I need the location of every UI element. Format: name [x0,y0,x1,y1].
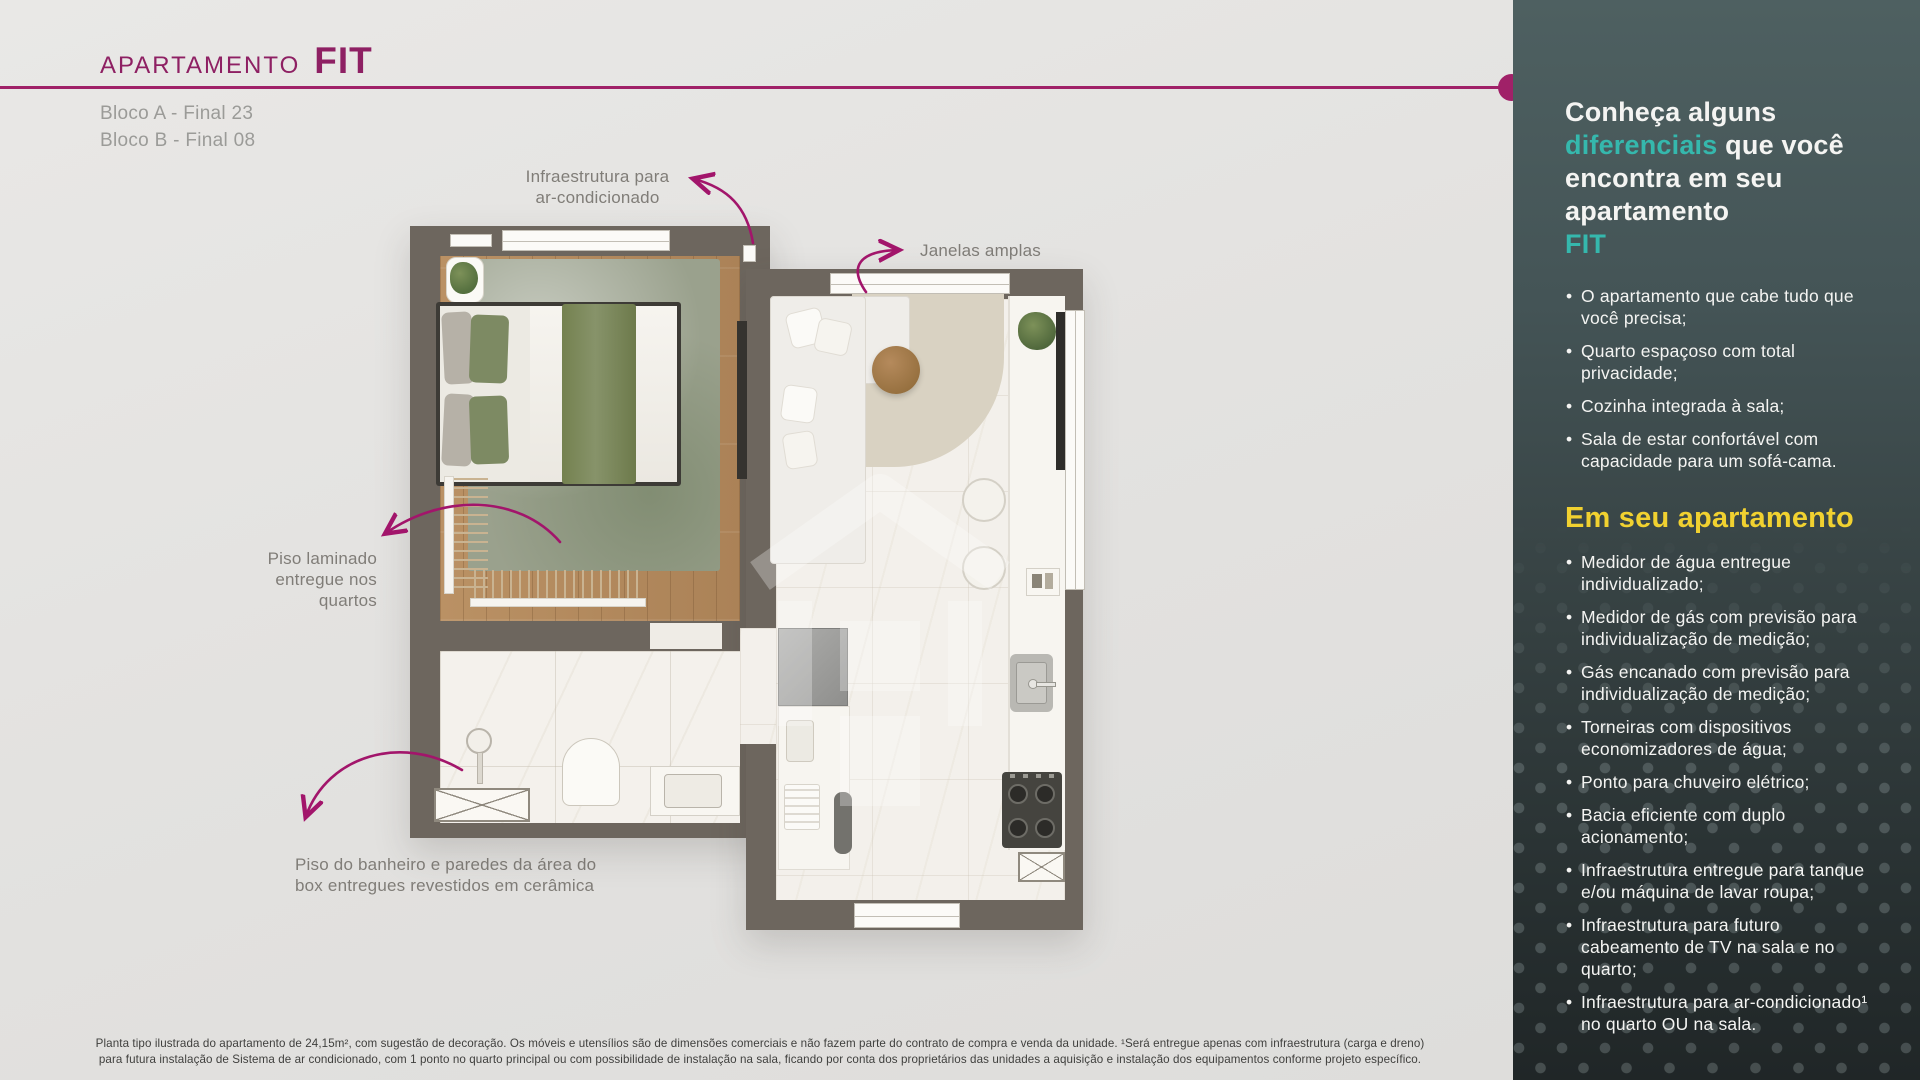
diferenciais-list: O apartamento que cabe tudo que você pre… [1565,285,1882,472]
feature-item: Medidor de água entregue individualizado… [1565,551,1882,595]
feature-item: Cozinha integrada à sala; [1565,395,1882,417]
feature-item: Infraestrutura para futuro cabeamento de… [1565,914,1882,980]
disclaimer-line-1: Planta tipo ilustrada do apartamento de … [60,1036,1460,1052]
feature-item: Ponto para chuveiro elétrico; [1565,771,1882,793]
arrow-laminate [386,505,560,542]
arrow-windows [858,250,898,292]
heading-part-1: Conheça alguns [1565,97,1776,127]
arrow-ac [694,179,753,243]
sidebar-heading: Conheça alguns diferenciais que você enc… [1565,96,1882,261]
feature-item: Torneiras com dispositivos economizadore… [1565,716,1882,760]
feature-item: Sala de estar confortável com capacidade… [1565,428,1882,472]
feature-item: Quarto espaçoso com total privacidade; [1565,340,1882,384]
sidebar-content: Conheça alguns diferenciais que você enc… [1565,96,1882,1046]
sidebar: Conheça alguns diferenciais que você enc… [1513,0,1920,1080]
disclaimer-line-2: para futura instalação de Sistema de ar … [60,1052,1460,1068]
disclaimer: Planta tipo ilustrada do apartamento de … [60,1036,1460,1068]
feature-item: O apartamento que cabe tudo que você pre… [1565,285,1882,329]
arrow-bathroom [306,752,462,816]
section-title-em-seu-apartamento: Em seu apartamento [1565,502,1882,535]
apartment-features-list: Medidor de água entregue individualizado… [1565,551,1882,1035]
heading-accent-diferenciais: diferenciais [1565,130,1717,160]
feature-item: Bacia eficiente com duplo acionamento; [1565,804,1882,848]
feature-item: Medidor de gás com previsão para individ… [1565,606,1882,650]
page: APARTAMENTO FIT Bloco A - Final 23 Bloco… [0,0,1920,1080]
feature-item: Gás encanado com previsão para individua… [1565,661,1882,705]
heading-accent-fit: FIT [1565,228,1882,261]
feature-item: Infraestrutura para ar-condicionado¹ no … [1565,991,1882,1035]
feature-item: Infraestrutura entregue para tanque e/ou… [1565,859,1882,903]
